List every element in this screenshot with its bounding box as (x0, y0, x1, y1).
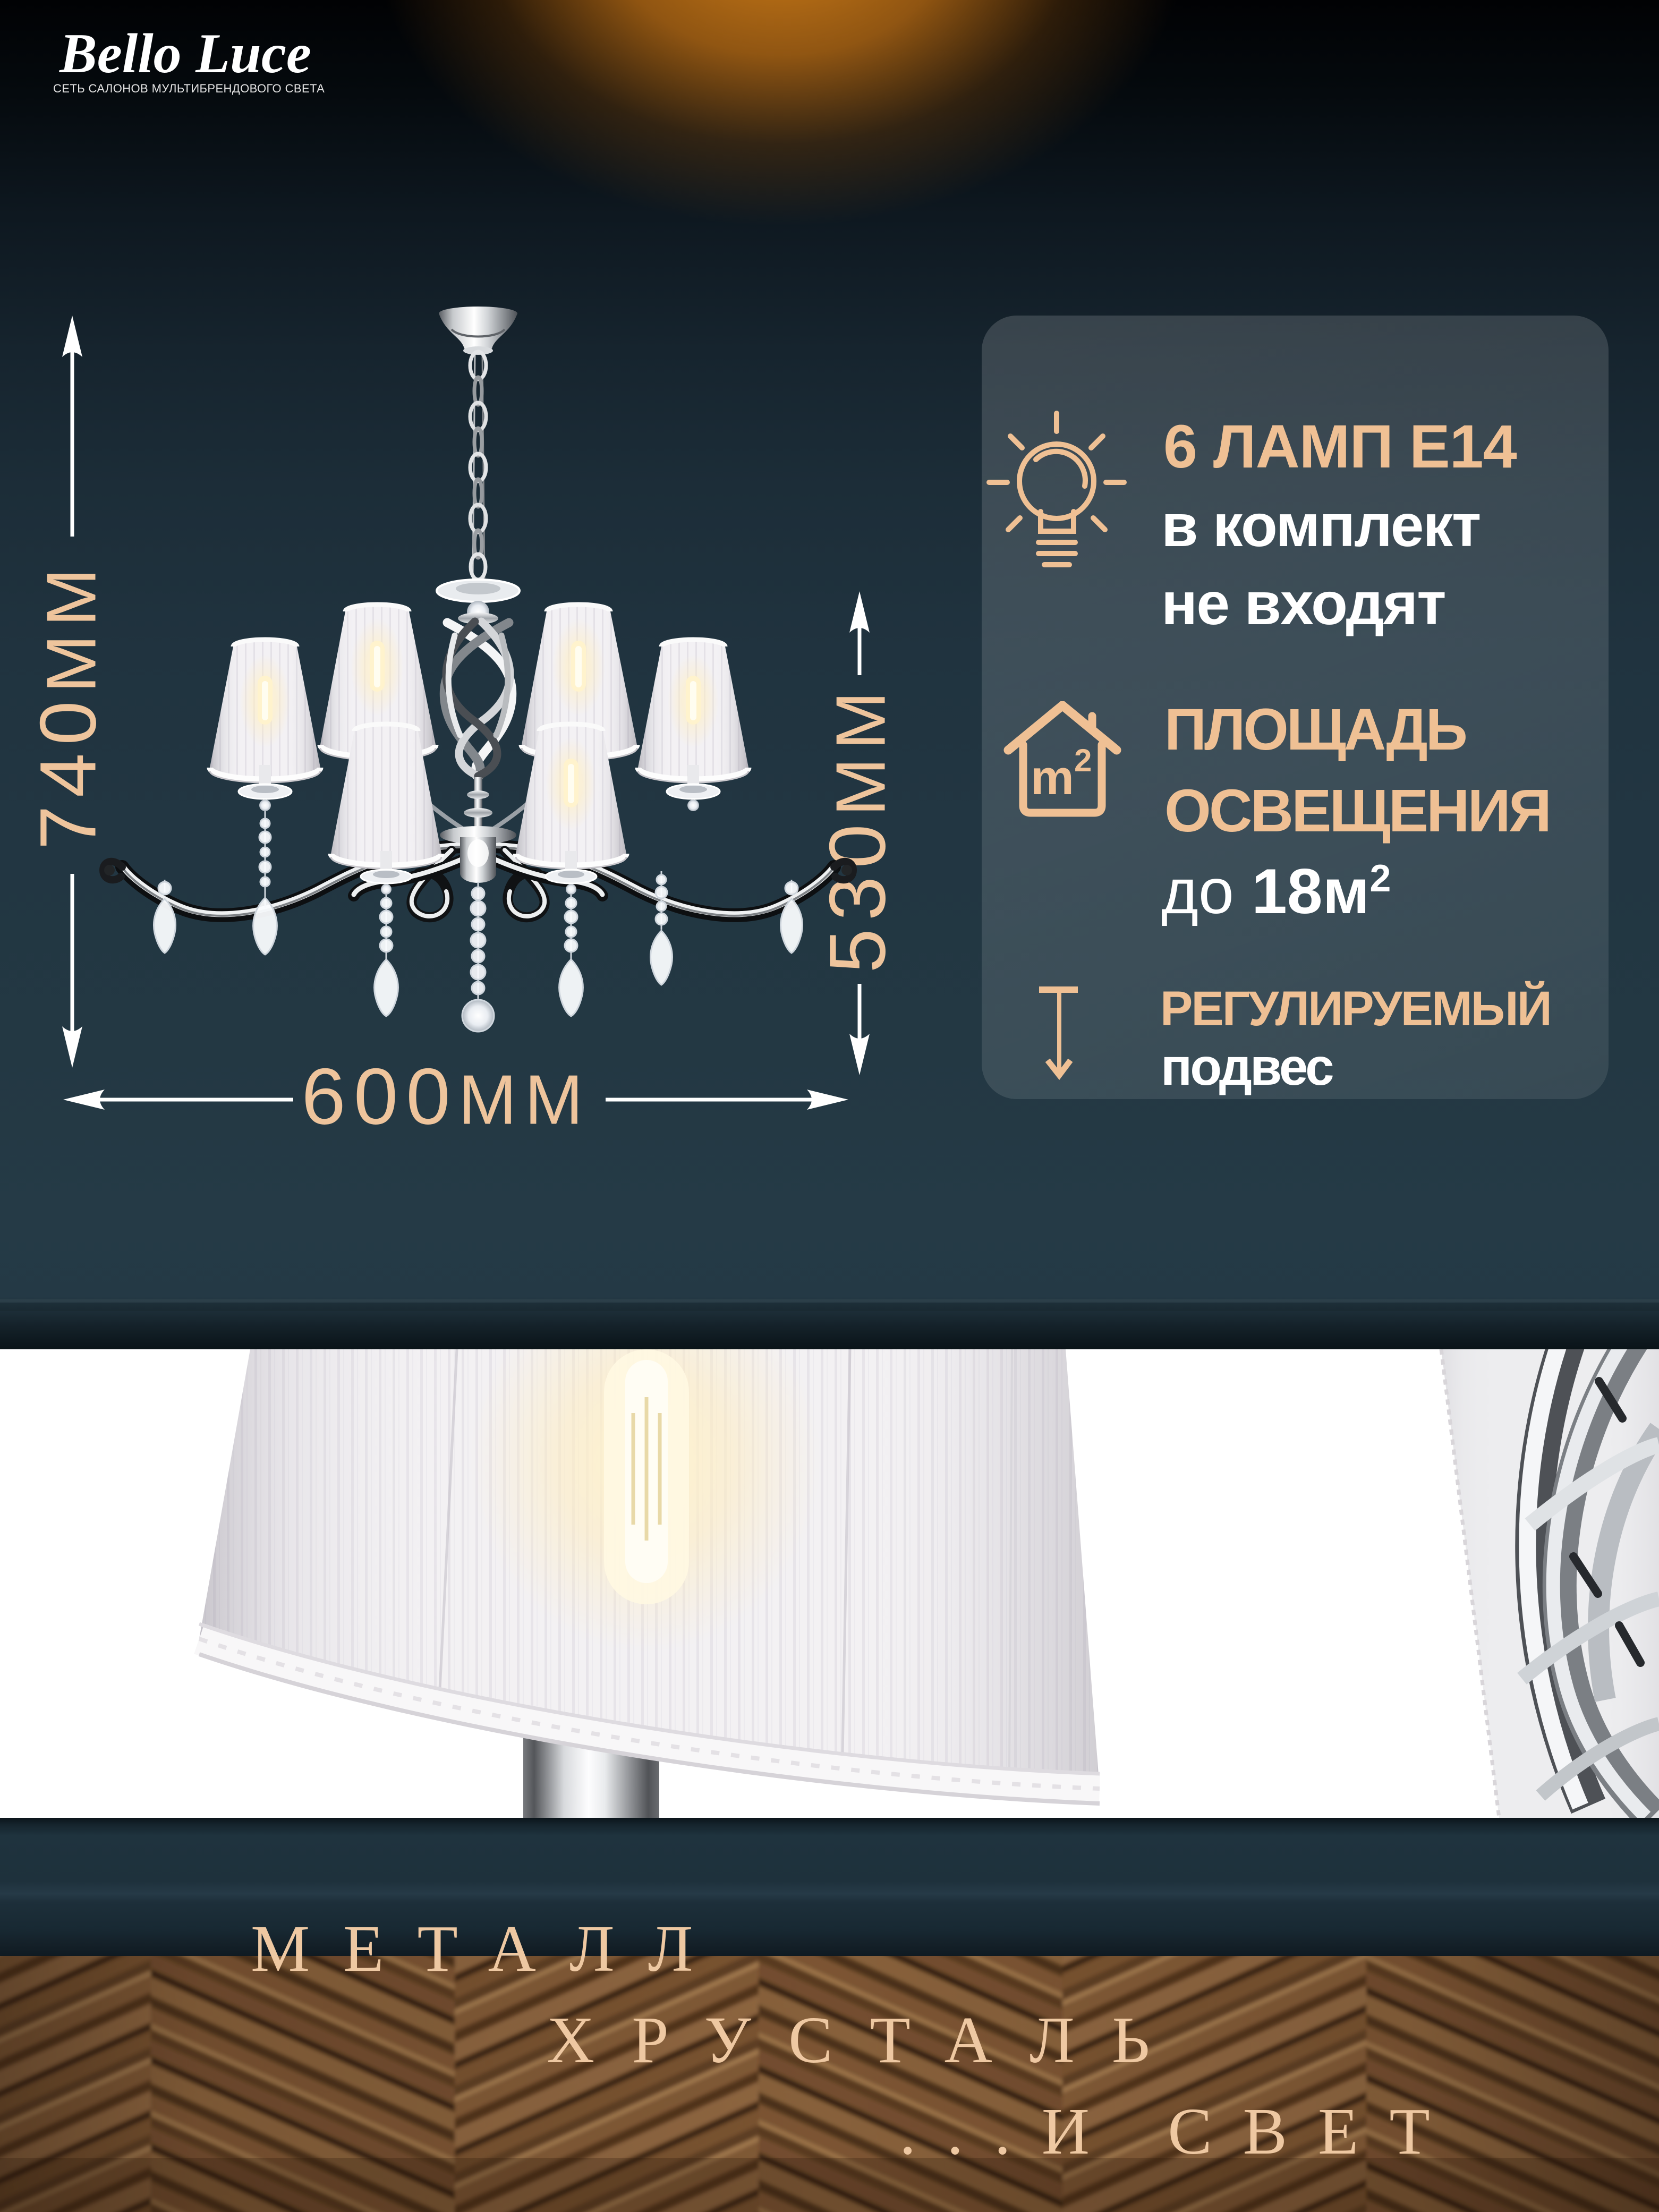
svg-text:m: m (1031, 751, 1074, 805)
svg-text:2: 2 (1074, 743, 1092, 778)
